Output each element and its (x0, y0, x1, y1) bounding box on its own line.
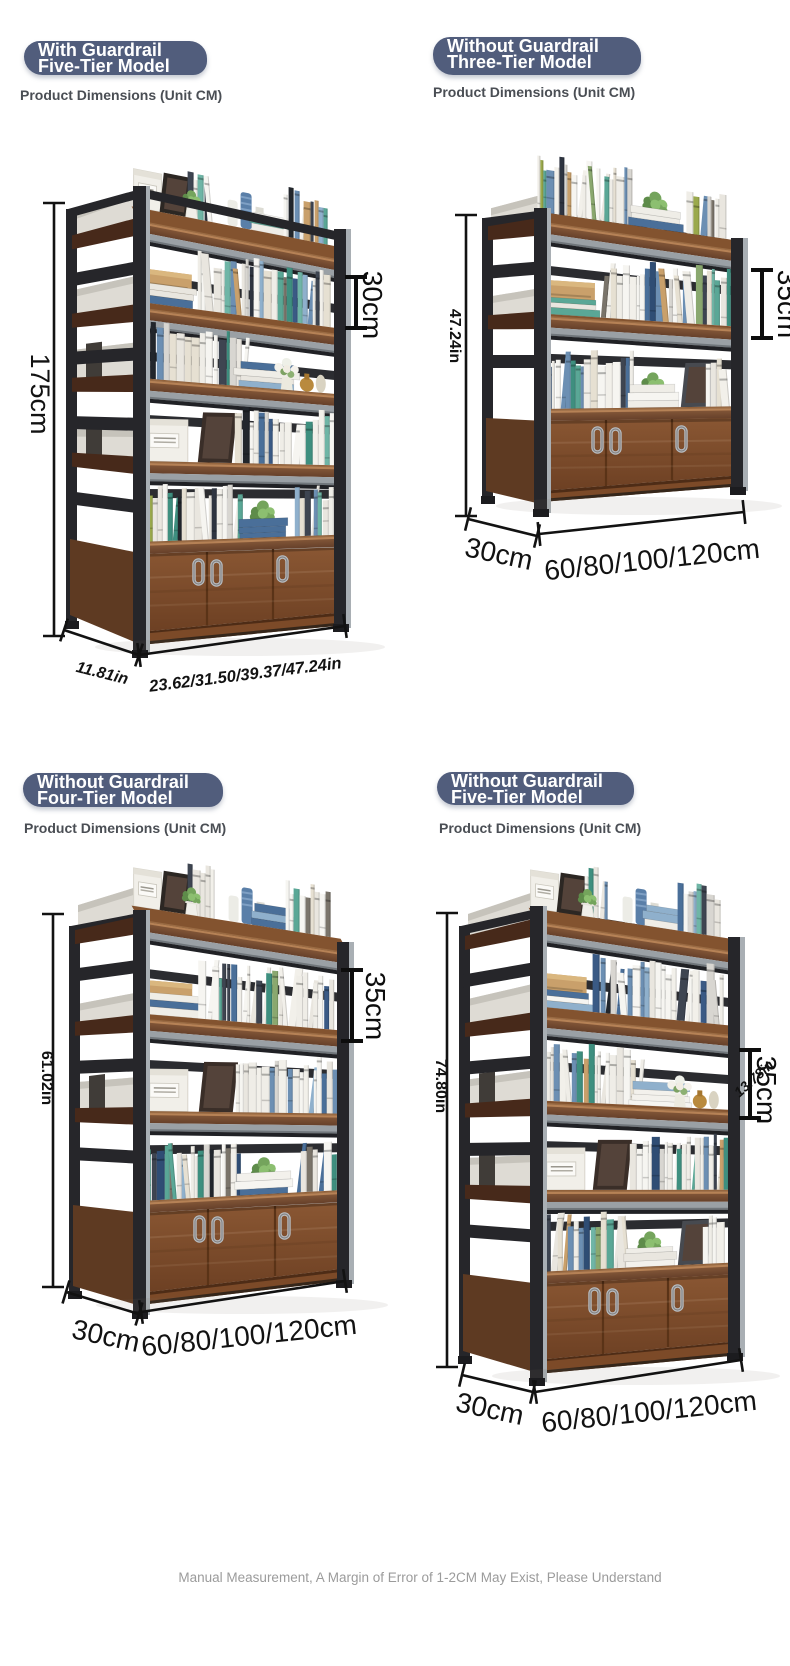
svg-text:30cm: 30cm (453, 1386, 526, 1431)
svg-text:74.80in: 74.80in (432, 1059, 449, 1113)
svg-text:23.62/31.50/39.37/47.24in: 23.62/31.50/39.37/47.24in (147, 654, 342, 696)
svg-text:61.02in: 61.02in (38, 1051, 55, 1105)
svg-text:30cm: 30cm (69, 1313, 142, 1358)
svg-text:47.24in: 47.24in (446, 309, 463, 363)
svg-text:60/80/100/120cm: 60/80/100/120cm (140, 1309, 358, 1362)
svg-text:175cm: 175cm (25, 353, 55, 434)
svg-text:30cm: 30cm (462, 531, 535, 576)
svg-text:30cm: 30cm (357, 271, 388, 339)
svg-text:60/80/100/120cm: 60/80/100/120cm (543, 533, 761, 586)
svg-text:11.81in: 11.81in (74, 659, 130, 688)
svg-text:60/80/100/120cm: 60/80/100/120cm (540, 1385, 758, 1438)
svg-text:35cm: 35cm (772, 270, 790, 338)
svg-text:35cm: 35cm (360, 972, 391, 1040)
